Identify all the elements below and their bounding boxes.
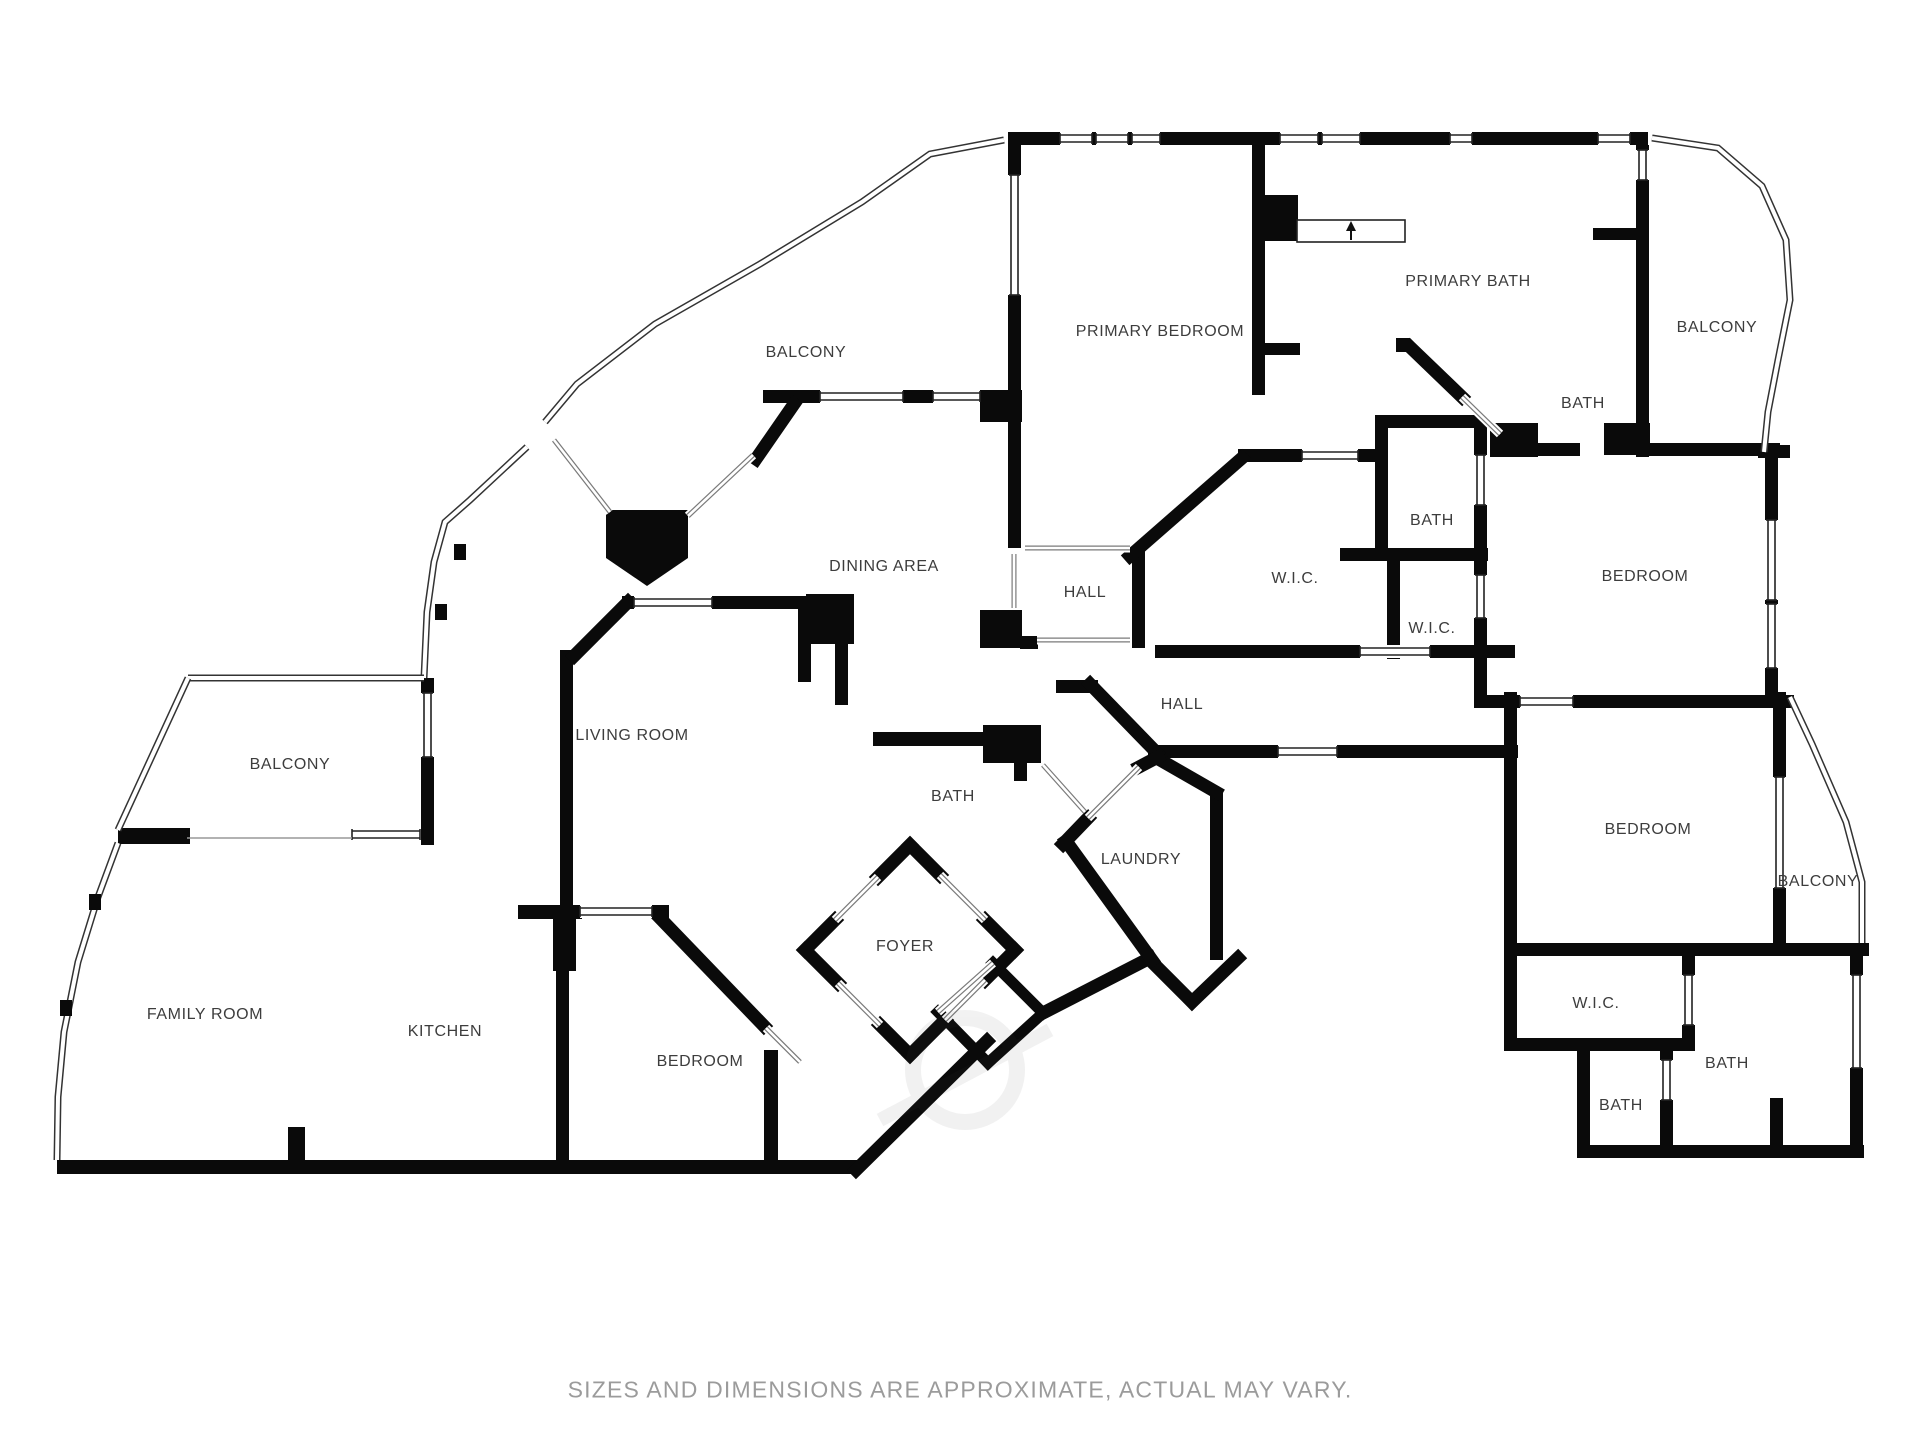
room-label-wic-main: W.I.C. bbox=[1271, 570, 1318, 588]
room-label-bedroom-lower-right: BEDROOM bbox=[1605, 821, 1692, 839]
room-label-balcony-top-right: BALCONY bbox=[1677, 319, 1758, 337]
room-label-balcony-left: BALCONY bbox=[250, 756, 331, 774]
room-label-laundry: LAUNDRY bbox=[1101, 851, 1181, 869]
room-label-foyer: FOYER bbox=[876, 938, 934, 956]
room-label-bath-bottom-small: BATH bbox=[1599, 1097, 1643, 1115]
room-label-balcony-lower-right: BALCONY bbox=[1778, 873, 1859, 891]
disclaimer-text: SIZES AND DIMENSIONS ARE APPROXIMATE, AC… bbox=[568, 1377, 1353, 1404]
room-label-hall-upper: HALL bbox=[1064, 584, 1106, 602]
room-label-bath-center: BATH bbox=[931, 788, 975, 806]
room-label-dining-area: DINING AREA bbox=[829, 558, 939, 576]
room-label-bath-top-right: BATH bbox=[1561, 395, 1605, 413]
room-label-primary-bedroom: PRIMARY BEDROOM bbox=[1076, 323, 1244, 341]
room-label-kitchen: KITCHEN bbox=[408, 1023, 482, 1041]
room-label-wic-small: W.I.C. bbox=[1408, 620, 1455, 638]
floorplan-canvas: BALCONYPRIMARY BEDROOMPRIMARY BATHBALCON… bbox=[0, 0, 1920, 1440]
room-label-balcony-top: BALCONY bbox=[766, 344, 847, 362]
room-label-bedroom-right: BEDROOM bbox=[1602, 568, 1689, 586]
room-label-bedroom-bottom: BEDROOM bbox=[657, 1053, 744, 1071]
room-label-bath-bottom-right: BATH bbox=[1705, 1055, 1749, 1073]
room-label-hall-lower: HALL bbox=[1161, 696, 1203, 714]
room-label-living-room: LIVING ROOM bbox=[575, 727, 688, 745]
floorplan-drawing bbox=[0, 0, 1920, 1440]
room-label-primary-bath: PRIMARY BATH bbox=[1405, 273, 1530, 291]
room-label-wic-bottom-right: W.I.C. bbox=[1572, 995, 1619, 1013]
room-label-bath-mid: BATH bbox=[1410, 512, 1454, 530]
room-label-family-room: FAMILY ROOM bbox=[147, 1006, 263, 1024]
